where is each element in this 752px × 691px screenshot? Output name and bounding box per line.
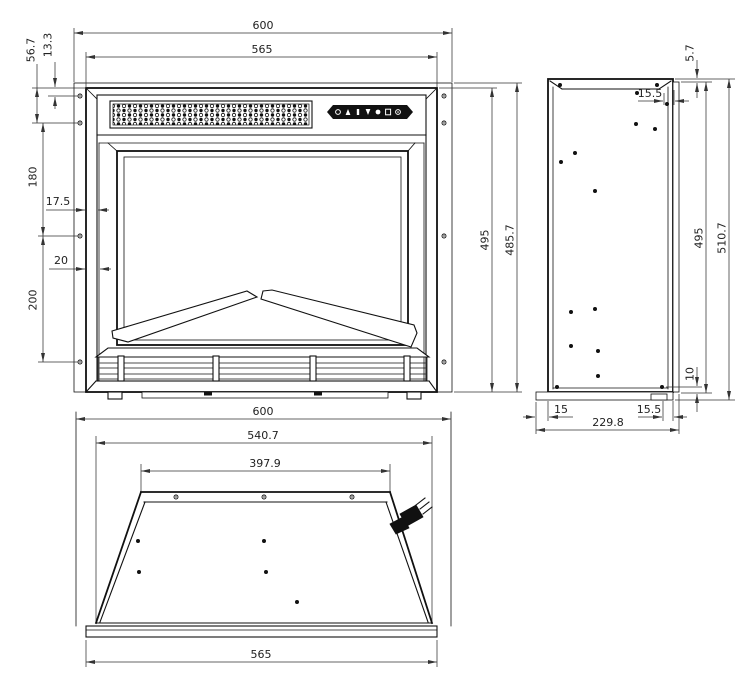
foot <box>407 392 421 399</box>
dim-15-5-bottom: 15.5 <box>637 401 687 421</box>
hole <box>137 570 141 574</box>
dim-label: 495 <box>693 228 706 249</box>
hearth <box>96 348 429 357</box>
front-bar <box>86 626 437 637</box>
front-face <box>86 88 437 392</box>
dim-label: 600 <box>253 405 274 418</box>
dim-label: 229.8 <box>592 416 624 429</box>
hole <box>559 160 563 164</box>
hole <box>555 385 559 389</box>
dim-face-width: 565 <box>86 43 437 87</box>
dim-label: 495 <box>479 230 492 251</box>
dim-label: 15 <box>554 403 568 416</box>
dim-label: 15.5 <box>638 87 663 100</box>
dim-label: 17.5 <box>46 195 71 208</box>
bottom-recess <box>142 392 388 398</box>
dimmer-bar-icon <box>357 109 359 115</box>
dim-label: 20 <box>54 254 68 267</box>
hole <box>295 600 299 604</box>
dim-label: 56.7 <box>25 38 38 63</box>
fence-post <box>118 356 124 381</box>
hole <box>660 385 664 389</box>
dim-label: 540.7 <box>247 429 279 442</box>
dim-label: 565 <box>251 648 272 661</box>
led-icon <box>376 110 381 115</box>
hole <box>569 310 573 314</box>
hole <box>264 570 268 574</box>
dim-label: 15.5 <box>637 403 662 416</box>
dim-200: 200 <box>27 236 79 362</box>
hole <box>593 307 597 311</box>
dim-label: 10 <box>684 367 697 381</box>
hole <box>569 344 573 348</box>
fence-post <box>213 356 219 381</box>
grille-dot-pattern <box>113 104 309 125</box>
hole <box>558 83 562 87</box>
front-view: 600 565 13.3 56.7 <box>25 19 523 399</box>
bottom-body <box>96 492 432 623</box>
power-plug <box>390 498 432 534</box>
hole <box>596 374 600 378</box>
dim-397-9: 397.9 <box>141 457 390 492</box>
dim-label: 565 <box>252 43 273 56</box>
hole <box>262 539 266 543</box>
fence-post <box>404 356 410 381</box>
dim-540-7: 540.7 <box>96 429 432 443</box>
dim-label: 485.7 <box>504 224 517 256</box>
side-foot <box>651 394 667 400</box>
control-panel <box>327 105 413 119</box>
dim-overall-width-bottom: 600 <box>76 405 451 419</box>
dim-495-side: 495 <box>681 82 712 393</box>
dim-5-7: 5.7 <box>675 44 735 98</box>
side-view: 5.7 15.5 495 510.7 <box>523 44 735 434</box>
hole <box>593 189 597 193</box>
dim-label: 200 <box>27 290 40 311</box>
hole <box>653 127 657 131</box>
dim-15: 15 <box>523 401 573 434</box>
technical-drawing-page: 600 565 13.3 56.7 <box>0 0 752 691</box>
front-flange-edge <box>673 82 679 392</box>
hole <box>665 102 669 106</box>
hole <box>136 539 140 543</box>
fence-post <box>310 356 316 381</box>
dim-label: 510.7 <box>716 222 729 254</box>
dim-label: 180 <box>27 167 40 188</box>
dim-label: 5.7 <box>684 44 697 62</box>
dim-label: 600 <box>253 19 274 32</box>
dim-label: 13.3 <box>42 33 55 58</box>
foot <box>108 392 122 399</box>
dim-label: 397.9 <box>249 457 281 470</box>
hole <box>573 151 577 155</box>
fireplace-three-view-drawing: 600 565 13.3 56.7 <box>0 0 752 691</box>
bottom-mark <box>314 392 322 396</box>
hole <box>634 122 638 126</box>
dim-180: 180 <box>27 123 79 236</box>
dim-565-bottom: 565 <box>86 640 437 667</box>
bottom-mark <box>204 392 212 396</box>
hole <box>596 349 600 353</box>
bottom-view: 600 540.7 397.9 565 <box>76 405 451 667</box>
side-body <box>548 79 673 392</box>
heat-icon-dot <box>397 111 399 113</box>
